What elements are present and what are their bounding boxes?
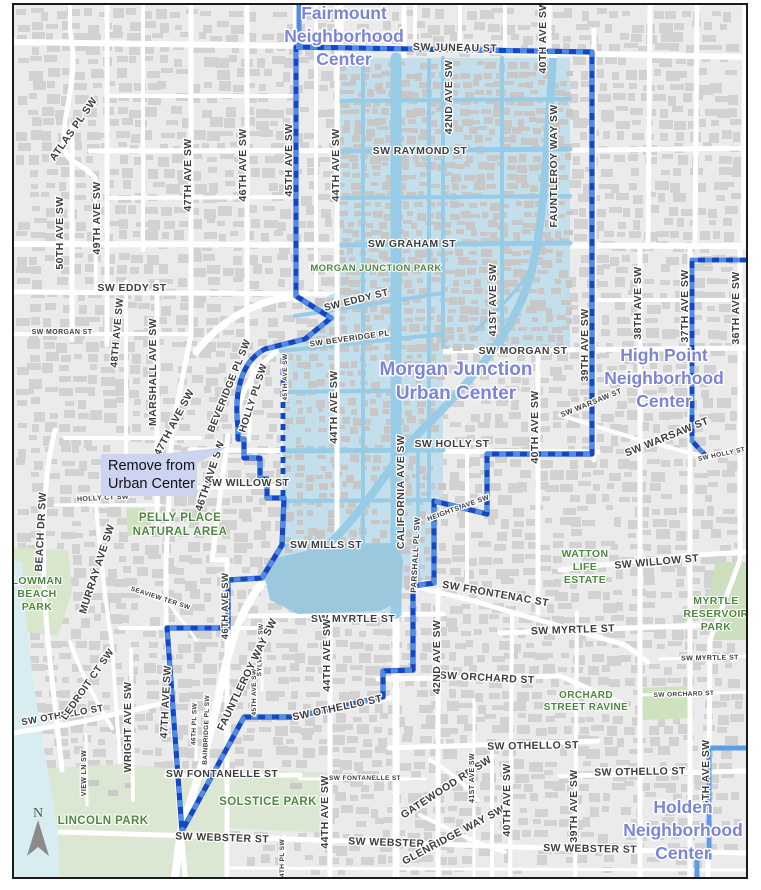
svg-text:40TH AVE SW: 40TH AVE SW [537,0,549,73]
svg-text:SW MYRTLE ST: SW MYRTLE ST [681,654,739,662]
svg-text:46TH AVE SW: 46TH AVE SW [237,128,249,201]
svg-text:49TH AVE SW: 49TH AVE SW [91,181,103,254]
svg-text:SW OTHELLO ST: SW OTHELLO ST [487,739,579,753]
svg-text:Holden: Holden [653,797,712,817]
svg-text:44TH PL SW: 44TH PL SW [279,838,286,881]
svg-text:LINCOLN PARK: LINCOLN PARK [58,815,149,827]
svg-text:SW FONTANELLE ST: SW FONTANELLE ST [166,768,279,780]
svg-text:44TH AVE SW: 44TH AVE SW [319,775,331,848]
svg-text:N: N [33,806,43,821]
svg-text:50TH AVE SW: 50TH AVE SW [54,196,66,269]
svg-text:SW JUNEAU ST: SW JUNEAU ST [413,41,498,54]
svg-text:LOWMAN: LOWMAN [12,575,63,587]
svg-text:44TH AVE SW: 44TH AVE SW [330,128,342,201]
svg-text:SW MORGAN ST: SW MORGAN ST [32,329,93,336]
svg-text:37TH AVE SW: 37TH AVE SW [679,269,691,342]
svg-text:38TH AVE SW: 38TH AVE SW [632,266,644,339]
svg-text:PELLY PLACE: PELLY PLACE [139,512,221,524]
svg-text:41ST AVE SW: 41ST AVE SW [469,753,476,803]
svg-text:42ND AVE SW: 42ND AVE SW [443,60,455,134]
svg-text:SW MILLS ST: SW MILLS ST [290,539,362,551]
svg-text:Morgan Junction: Morgan Junction [379,359,532,380]
svg-text:Urban Center: Urban Center [396,383,517,404]
svg-text:40TH AVE SW: 40TH AVE SW [529,390,541,463]
svg-text:39TH AVE SW: 39TH AVE SW [579,308,591,381]
svg-text:Neighborhood: Neighborhood [623,820,743,840]
svg-text:39TH AVE SW: 39TH AVE SW [568,769,580,842]
svg-text:NATURAL AREA: NATURAL AREA [133,526,228,538]
svg-text:RESERVOIR: RESERVOIR [683,608,748,620]
svg-text:WATTON: WATTON [562,548,609,560]
svg-text:MYRTLE: MYRTLE [693,595,739,607]
svg-text:FAUNTLEROY WAY SW: FAUNTLEROY WAY SW [548,104,560,227]
svg-text:SW WILLOW ST: SW WILLOW ST [205,477,290,489]
svg-text:46TH AVE SW: 46TH AVE SW [220,573,231,640]
svg-text:45TH AVE SW: 45TH AVE SW [282,353,289,400]
svg-text:47TH AVE SW: 47TH AVE SW [182,138,194,211]
svg-text:SW GRAHAM ST: SW GRAHAM ST [368,238,456,250]
svg-text:VIEW LN SW: VIEW LN SW [81,750,88,796]
svg-text:Center: Center [636,391,692,411]
svg-text:STREET RAVINE: STREET RAVINE [544,702,628,713]
svg-text:BEACH: BEACH [17,588,56,600]
svg-text:SW RAYMOND ST: SW RAYMOND ST [373,145,468,157]
svg-text:Fairmount: Fairmount [301,3,387,23]
svg-text:40TH AVE SW: 40TH AVE SW [501,763,513,836]
svg-text:SW HOLLY ST: SW HOLLY ST [415,438,490,450]
svg-text:SW WEBSTER ST: SW WEBSTER ST [543,842,637,856]
svg-text:High Point: High Point [620,345,708,365]
svg-text:MORGAN JUNCTION PARK: MORGAN JUNCTION PARK [310,263,441,274]
svg-text:SW MORGAN ST: SW MORGAN ST [479,345,568,357]
svg-text:SW OTHELLO ST: SW OTHELLO ST [594,765,686,779]
svg-text:44TH AVE SW: 44TH AVE SW [328,370,340,443]
svg-text:46TH PL SW: 46TH PL SW [190,702,198,745]
svg-text:PARK: PARK [701,621,732,633]
svg-text:SOLSTICE PARK: SOLSTICE PARK [219,796,317,808]
svg-text:44TH AVE SW: 44TH AVE SW [321,618,333,691]
svg-text:Neighborhood: Neighborhood [284,26,404,46]
svg-text:MARSHALL AVE SW: MARSHALL AVE SW [147,318,159,426]
svg-text:42ND AVE SW: 42ND AVE SW [431,620,443,694]
svg-text:ESTATE: ESTATE [564,574,606,586]
svg-text:45TH AVE SW: 45TH AVE SW [283,123,295,196]
svg-text:WRIGHT AVE SW: WRIGHT AVE SW [122,682,134,773]
svg-text:Remove from: Remove from [108,458,195,474]
svg-text:ORCHARD: ORCHARD [559,690,613,701]
svg-text:SW EDDY ST: SW EDDY ST [97,282,166,294]
svg-text:CALIFORNIA AVE SW: CALIFORNIA AVE SW [395,435,407,549]
svg-text:Urban Center: Urban Center [108,476,195,492]
svg-text:36TH AVE SW: 36TH AVE SW [730,271,742,344]
svg-text:41ST AVE SW: 41ST AVE SW [487,264,499,337]
svg-text:Neighborhood: Neighborhood [604,368,724,388]
svg-text:LIFE: LIFE [573,561,597,573]
svg-text:Center: Center [655,843,711,863]
svg-text:Center: Center [316,49,372,69]
svg-text:PARK: PARK [22,601,53,613]
svg-text:SW FONTANELLE ST: SW FONTANELLE ST [329,775,401,782]
